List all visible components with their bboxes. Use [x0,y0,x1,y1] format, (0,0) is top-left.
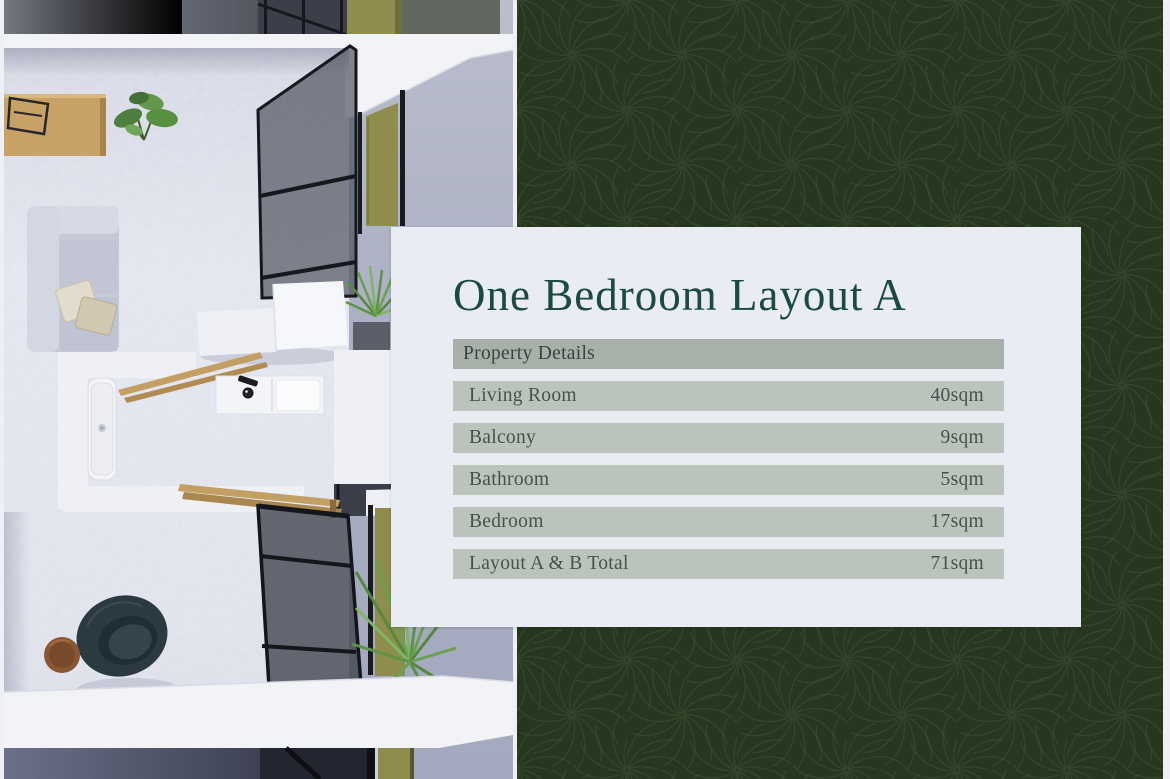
row-value: 40sqm [930,385,984,407]
table-row: Layout A & B Total 71sqm [453,549,1004,579]
row-value: 5sqm [941,469,984,491]
table-header-row: Property Details [453,339,1004,369]
property-details-card: One Bedroom Layout A Property Details Li… [391,227,1081,627]
side-table [44,637,80,673]
row-value: 17sqm [930,511,984,533]
table-header-label: Property Details [463,343,595,365]
page-title: One Bedroom Layout A [453,267,1005,323]
row-value: 9sqm [941,427,984,449]
presentation-slide: { "card": { "title": "One Bedroom Layout… [0,0,1170,779]
row-label: Bedroom [469,511,544,533]
row-label: Balcony [469,427,536,449]
sofa [27,206,119,352]
table-row: Bathroom 5sqm [453,465,1004,495]
row-label: Living Room [469,385,577,407]
row-label: Layout A & B Total [469,553,629,575]
table-row: Bedroom 17sqm [453,507,1004,537]
row-value: 71sqm [930,553,984,575]
property-table: Property Details Living Room 40sqm Balco… [453,339,1004,579]
table-row: Living Room 40sqm [453,381,1004,411]
row-label: Bathroom [469,469,549,491]
table-row: Balcony 9sqm [453,423,1004,453]
